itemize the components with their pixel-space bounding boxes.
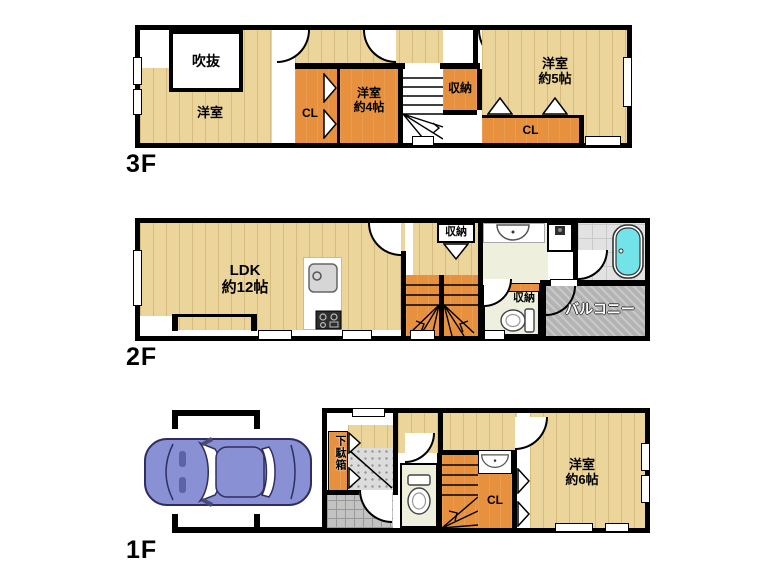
wall xyxy=(172,314,178,331)
youshitsu-3f-label: 洋室 xyxy=(188,106,232,121)
youshitsu-6jo-label: 洋室約6帖 xyxy=(542,458,622,488)
cl-right-label: CL xyxy=(482,124,579,138)
window-symbol xyxy=(623,57,632,107)
window-symbol xyxy=(412,136,434,146)
stairs-3f xyxy=(403,69,443,143)
closet-cl-3f-right: CL xyxy=(482,115,579,143)
closet-cl-1f: CL xyxy=(478,474,512,528)
closet-shuno-2f-top: 収納 xyxy=(437,223,475,243)
shuno-3f-label: 収納 xyxy=(443,82,477,96)
wall xyxy=(251,314,257,331)
carport-boundary xyxy=(172,527,325,533)
window-symbol xyxy=(641,475,650,503)
window-symbol xyxy=(258,330,292,340)
folding-door-icon xyxy=(517,468,530,494)
floor-2f-plan: LDK約12帖 収納 xyxy=(135,218,650,341)
wall xyxy=(473,30,478,69)
shuno-2f-mid-label: 収納 xyxy=(506,292,542,305)
balcony-label: バルコニー xyxy=(560,301,640,317)
room-youshitsu-4jo: 洋室約4帖 xyxy=(340,69,398,143)
closet-shuno-2f-mid xyxy=(508,283,540,292)
window-symbol xyxy=(410,330,435,340)
floor-3f-plan: 吹抜 洋室 CL 洋室約4帖 xyxy=(135,25,632,148)
folding-door-icon xyxy=(443,243,469,260)
wall xyxy=(579,115,584,143)
washbasin-counter xyxy=(478,450,512,474)
room-atrium-void: 吹抜 xyxy=(169,30,243,92)
youshitsu-4jo-label: 洋室約4帖 xyxy=(340,87,398,115)
ldk-label: LDK約12帖 xyxy=(195,262,295,297)
shoe-cabinet-label: 下駄箱 xyxy=(332,435,348,471)
stairs-1f xyxy=(442,455,478,528)
wall xyxy=(327,490,359,495)
window-symbol xyxy=(585,136,621,146)
window-symbol xyxy=(352,408,385,417)
washbasin-icon xyxy=(495,224,531,242)
closet-shuno-3f: 収納 xyxy=(443,69,477,110)
folding-door-icon xyxy=(542,97,568,115)
folding-door-icon xyxy=(487,97,513,115)
carport-boundary xyxy=(254,410,260,429)
washing-machine-pan-icon xyxy=(547,223,573,252)
cl-left-label: CL xyxy=(295,107,325,121)
folding-door-icon xyxy=(323,109,337,139)
carport-boundary xyxy=(172,514,178,533)
window-symbol xyxy=(484,330,505,340)
shoe-cabinet: 下駄箱 xyxy=(328,431,348,492)
folding-door-icon xyxy=(348,432,361,454)
stairs-2f xyxy=(406,275,478,336)
window-symbol xyxy=(641,443,650,471)
kitchen-sink-icon xyxy=(308,263,338,293)
wall xyxy=(172,314,257,317)
atrium-label: 吹抜 xyxy=(173,53,239,69)
window-symbol xyxy=(605,523,629,532)
folding-door-icon xyxy=(323,73,337,103)
room-toilet-1f xyxy=(400,463,438,528)
stove-icon xyxy=(315,310,342,330)
carport-boundary xyxy=(172,410,260,416)
folding-door-icon xyxy=(517,501,530,527)
floor-1f-plan: 下駄箱 xyxy=(135,405,650,535)
wall xyxy=(438,413,443,453)
window-symbol xyxy=(133,89,142,115)
bathtub-icon xyxy=(612,224,644,279)
floor-plan-canvas: 吹抜 洋室 CL 洋室約4帖 xyxy=(0,0,780,585)
carport-boundary xyxy=(172,410,178,429)
carport-boundary xyxy=(254,514,260,533)
window-symbol xyxy=(555,523,593,532)
car-top-view-icon xyxy=(143,435,315,509)
wall xyxy=(443,110,477,115)
shuno-2f-top-label: 収納 xyxy=(439,226,473,239)
door-arc-icon xyxy=(405,433,435,463)
floor-2f-label: 2F xyxy=(126,343,157,372)
floor-inset xyxy=(140,316,172,336)
floor-strip xyxy=(406,223,413,280)
folding-door-icon xyxy=(348,467,361,489)
floor-3f-label: 3F xyxy=(126,150,157,179)
window-symbol xyxy=(133,57,142,85)
window-symbol xyxy=(133,250,142,306)
youshitsu-5jo-label: 洋室約5帖 xyxy=(515,57,595,87)
cl-1f-label: CL xyxy=(478,494,512,508)
window-symbol xyxy=(342,330,372,340)
floor-1f-label: 1F xyxy=(126,536,157,565)
building-1f: 下駄箱 xyxy=(322,408,650,533)
